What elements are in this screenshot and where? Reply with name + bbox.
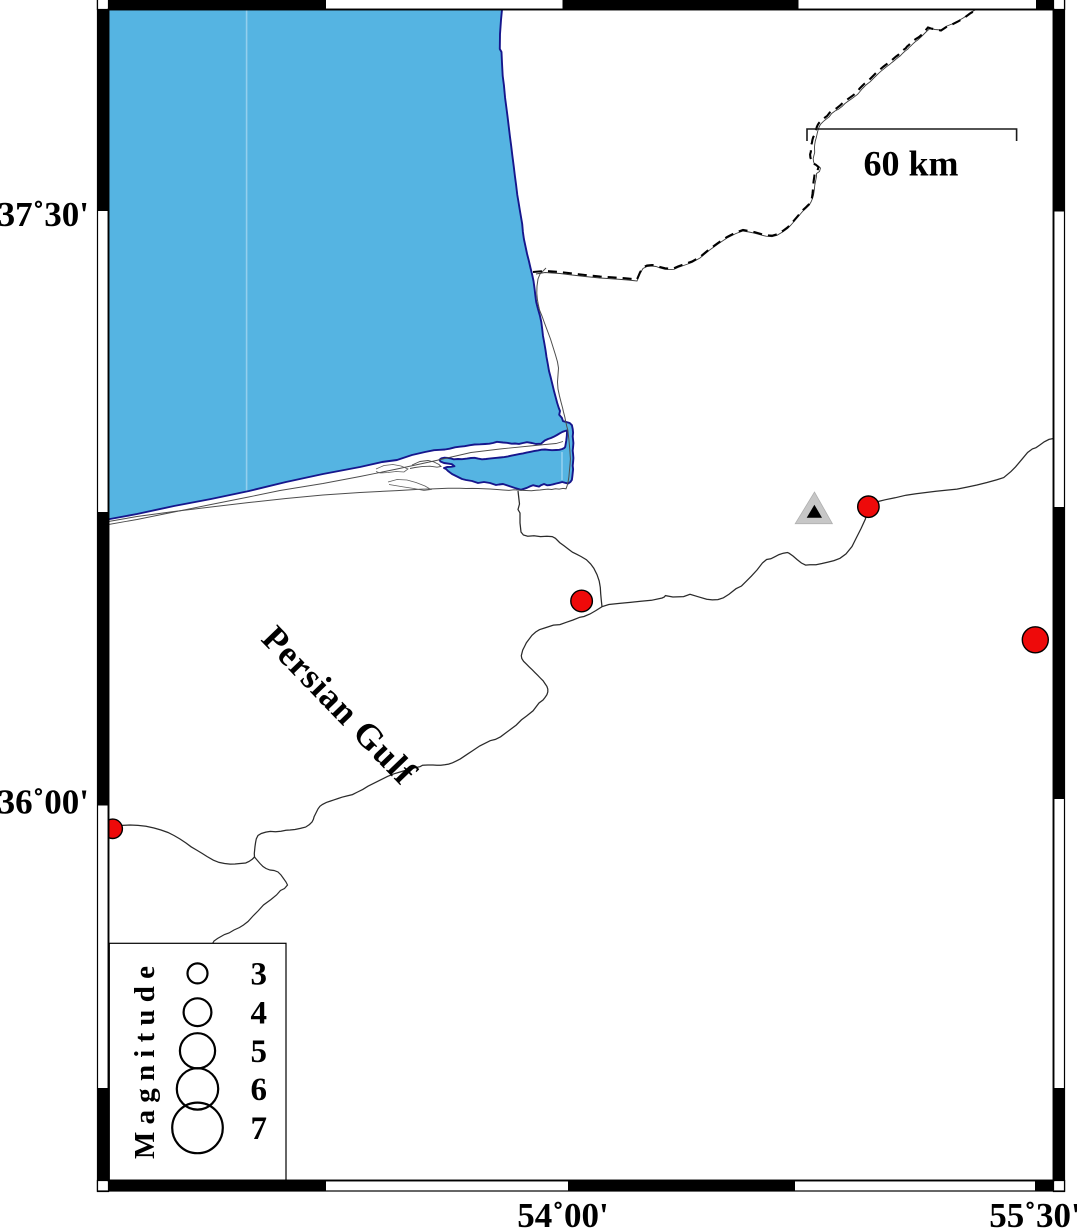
svg-text:6: 6 [250, 1072, 267, 1108]
svg-text:55˚30': 55˚30' [989, 1196, 1077, 1229]
svg-text:3: 3 [250, 957, 267, 993]
svg-text:60 km: 60 km [863, 144, 958, 184]
svg-text:5: 5 [250, 1034, 267, 1070]
svg-text:36˚00': 36˚00' [0, 783, 89, 822]
svg-text:Magnitude: Magnitude [129, 959, 161, 1159]
svg-text:54˚00': 54˚00' [517, 1196, 608, 1229]
svg-text:7: 7 [250, 1111, 267, 1147]
svg-text:4: 4 [250, 995, 267, 1031]
svg-text:37˚30': 37˚30' [0, 195, 89, 234]
